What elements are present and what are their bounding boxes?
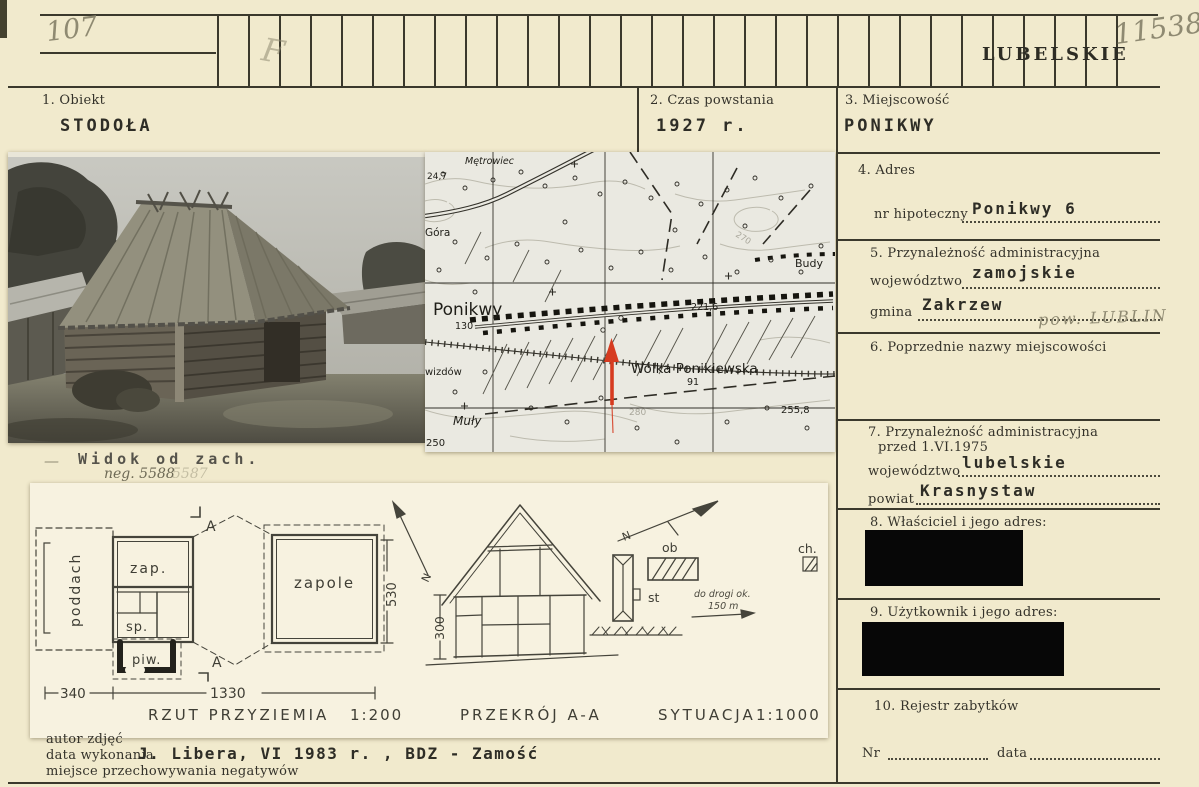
field1-value: STODOŁA bbox=[60, 116, 153, 136]
catalog-number: 11538 bbox=[1112, 6, 1199, 51]
field3-value: PONIKWY bbox=[844, 116, 937, 136]
sep-9-10 bbox=[836, 688, 1160, 690]
field4-value: Ponikwy 6 bbox=[972, 199, 1077, 218]
map-label-130: 130 bbox=[455, 321, 473, 332]
footer-date-value: J. Libera, VI 1983 r. , BDZ - Zamość bbox=[138, 744, 539, 763]
map-label-91: 91 bbox=[687, 377, 699, 388]
field7-woj-value: lubelskie bbox=[962, 453, 1067, 472]
sep-5-6 bbox=[836, 332, 1160, 334]
field7-powiat-dotted bbox=[916, 503, 1160, 505]
field7-label: 7. Przynależność administracyjna bbox=[868, 425, 1098, 440]
field10-nr-dotted bbox=[888, 758, 988, 760]
caption-plan-scale: 1:200 bbox=[350, 706, 403, 724]
negative-number-2: 5587 bbox=[172, 466, 208, 482]
scan-edge bbox=[0, 0, 7, 38]
map-label-250: 250 bbox=[426, 438, 445, 449]
field5-gmina-label: gmina bbox=[870, 305, 912, 320]
field5-woj-label: województwo bbox=[870, 274, 962, 289]
dim-530: 530 bbox=[385, 582, 400, 607]
location-map: Mętrowiec 24,7 Góra Ponikwy 130 Budy 270… bbox=[425, 152, 835, 452]
situation-label-st: st bbox=[648, 590, 660, 605]
field4-label: 4. Adres bbox=[858, 163, 915, 178]
divider-field1-2 bbox=[637, 88, 639, 152]
field10-data-dotted bbox=[1030, 758, 1160, 760]
region-stamp: LUBELSKIE bbox=[982, 44, 1129, 65]
dim-1330: 1330 bbox=[210, 686, 246, 702]
drawing-sheet: poddach zap. sp. piw. zapole A A 340 133… bbox=[30, 483, 828, 738]
plan-north-label: N bbox=[419, 571, 434, 584]
map-labels: Mętrowiec 24,7 Góra Ponikwy 130 Budy 270… bbox=[425, 156, 824, 449]
map-red-arrow bbox=[604, 338, 619, 433]
barn-photo-art bbox=[8, 152, 425, 443]
footer-storage-label: miejsce przechowywania negatywów bbox=[46, 764, 299, 779]
map-label-wolka: Wólka Ponikiewska bbox=[631, 361, 758, 377]
inventory-number: 107 bbox=[44, 11, 99, 48]
map-label-muly: Muły bbox=[453, 414, 482, 428]
field6-label: 6. Poprzednie nazwy miejscowości bbox=[870, 340, 1107, 355]
dim-300: 300 bbox=[432, 616, 447, 640]
field2-value: 1927 r. bbox=[656, 116, 749, 136]
field8-label: 8. Właściciel i jego adres: bbox=[870, 515, 1047, 530]
section-mark-a-top: A bbox=[206, 519, 216, 535]
field5-woj-value: zamojskie bbox=[972, 263, 1077, 282]
inventory-underline bbox=[40, 52, 216, 54]
field2-label: 2. Czas powstania bbox=[650, 93, 774, 108]
map-label-270: 270 bbox=[733, 230, 752, 247]
strip-bottom-line bbox=[8, 86, 1160, 88]
situation-north-label: N bbox=[620, 529, 633, 544]
field5-woj-dotted bbox=[962, 287, 1160, 289]
field10-label: 10. Rejestr zabytków bbox=[874, 699, 1019, 714]
map-label-budy: Budy bbox=[795, 257, 824, 270]
field9-label: 9. Użytkownik i jego adres: bbox=[870, 605, 1058, 620]
situation-label-ob: ob bbox=[662, 540, 678, 555]
caption-section: PRZEKRÓJ A-A bbox=[460, 705, 602, 724]
field5-label: 5. Przynależność administracyjna bbox=[870, 246, 1100, 261]
caption-plan: RZUT PRZYZIEMIA bbox=[148, 706, 329, 724]
field7-powiat-label: powiat bbox=[868, 492, 914, 507]
situation-label-ch: ch. bbox=[798, 541, 817, 556]
map-label-wizdow: wizdów bbox=[425, 366, 462, 378]
sep-4-5 bbox=[836, 239, 1160, 241]
field9-redaction-box bbox=[862, 622, 1064, 676]
footer-author-label: autor zdjęć bbox=[46, 732, 123, 747]
field3-label: 3. Miejscowość bbox=[845, 93, 950, 108]
field5-pencil-note: pow. LUBLIN bbox=[1038, 306, 1168, 330]
plan-room-piw: piw. bbox=[132, 653, 161, 668]
negative-number: neg. 5588 bbox=[104, 466, 175, 482]
field10-data-label: data bbox=[997, 746, 1027, 761]
field5-gmina-value: Zakrzew bbox=[922, 295, 1003, 314]
map-roads bbox=[425, 152, 835, 374]
plan-room-sp: sp. bbox=[126, 620, 148, 635]
map-label-280: 280 bbox=[629, 408, 646, 418]
caption-situation-scale: 1:1000 bbox=[756, 706, 821, 724]
barn-photo bbox=[8, 152, 425, 443]
sep-7-8 bbox=[836, 508, 1160, 510]
field8-redaction-box bbox=[865, 530, 1023, 586]
map-label-247: 24,7 bbox=[427, 172, 447, 182]
situation-note-line1: do drogi ok. bbox=[694, 589, 751, 600]
field7-powiat-value: Krasnystaw bbox=[920, 481, 1036, 500]
field7-woj-label: województwo bbox=[868, 464, 960, 479]
plan-room-poddach: poddach bbox=[68, 553, 84, 627]
field4-row-label: nr hipoteczny bbox=[874, 207, 968, 222]
field10-nr-label: Nr bbox=[862, 746, 880, 761]
map-label-metrowiec: Mętrowiec bbox=[465, 156, 515, 167]
field1-label: 1. Obiekt bbox=[42, 93, 105, 108]
field7-woj-dotted bbox=[958, 475, 1160, 477]
card-bottom-line bbox=[8, 782, 1160, 784]
plan-room-zap: zap. bbox=[130, 561, 167, 577]
caption-dash: — bbox=[44, 452, 59, 470]
divider-main-right-column bbox=[836, 88, 838, 783]
map-label-ponikwy: Ponikwy bbox=[433, 300, 502, 320]
caption-situation: SYTUACJA bbox=[658, 706, 756, 724]
field4-dotted-line bbox=[962, 221, 1160, 223]
sep-8-9 bbox=[836, 598, 1160, 600]
dim-340: 340 bbox=[60, 686, 86, 702]
map-label-gora: Góra bbox=[425, 227, 450, 239]
drawing-sheet-art: poddach zap. sp. piw. zapole A A 340 133… bbox=[30, 483, 828, 738]
map-label-2558: 255,8 bbox=[781, 405, 810, 416]
record-card: 107 F LUBELSKIE 11538 1. Obiekt STODOŁA … bbox=[0, 0, 1199, 787]
plan-room-zapole: zapole bbox=[294, 574, 355, 592]
sep-6-7 bbox=[836, 419, 1160, 421]
map-label-2216: 221,6 bbox=[691, 302, 718, 313]
section-mark-a-bottom: A bbox=[212, 655, 222, 671]
location-map-art: Mętrowiec 24,7 Góra Ponikwy 130 Budy 270… bbox=[425, 152, 835, 452]
situation-note-line2: 150 m bbox=[708, 601, 738, 612]
sep-row1 bbox=[836, 152, 1160, 154]
